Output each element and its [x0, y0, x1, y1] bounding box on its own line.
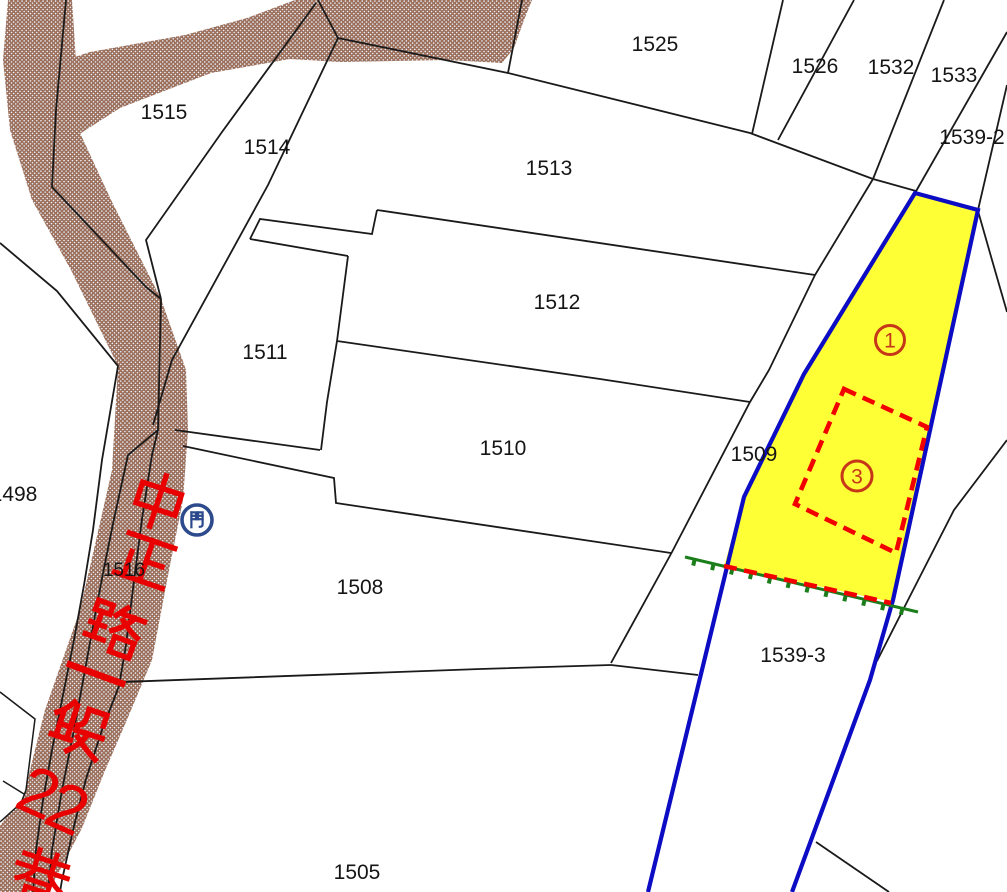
- svg-text:1505: 1505: [334, 861, 381, 884]
- svg-text:1509: 1509: [731, 443, 778, 466]
- svg-text:1511: 1511: [242, 341, 287, 364]
- svg-text:1514: 1514: [244, 136, 291, 159]
- svg-text:1512: 1512: [534, 291, 581, 314]
- svg-text:1508: 1508: [337, 576, 384, 599]
- svg-text:1539-3: 1539-3: [760, 644, 825, 667]
- svg-text:1513: 1513: [526, 157, 573, 180]
- svg-text:1498: 1498: [0, 483, 37, 506]
- svg-text:1539-2: 1539-2: [939, 126, 1004, 149]
- svg-text:3: 3: [851, 466, 863, 489]
- svg-text:1533: 1533: [931, 64, 978, 87]
- svg-text:1515: 1515: [141, 101, 188, 124]
- svg-text:1526: 1526: [792, 55, 839, 78]
- svg-text:1532: 1532: [868, 56, 915, 79]
- svg-text:1525: 1525: [632, 33, 679, 56]
- svg-text:1516: 1516: [103, 560, 145, 581]
- svg-text:1510: 1510: [480, 437, 527, 460]
- svg-text:1: 1: [884, 330, 896, 353]
